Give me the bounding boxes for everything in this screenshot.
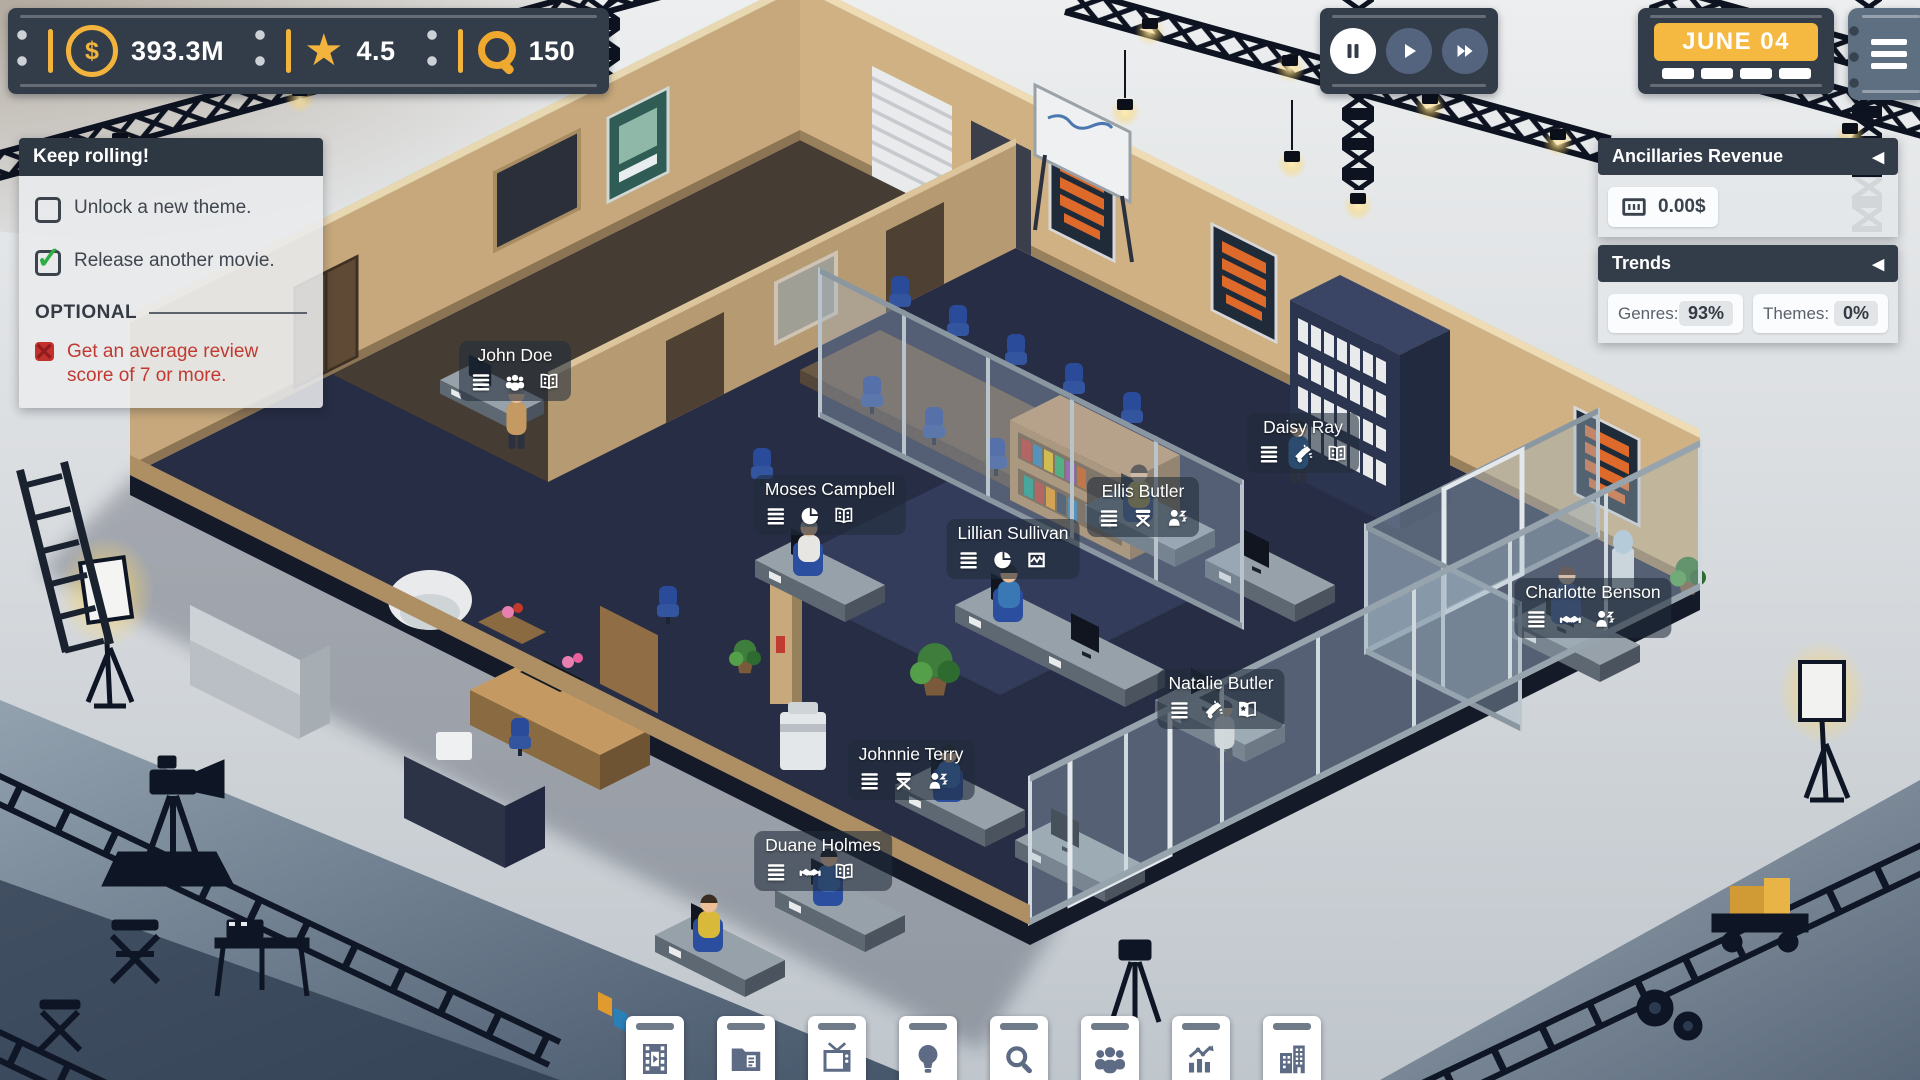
menu-button[interactable] (1848, 8, 1920, 100)
character-label-charlotte-benson[interactable]: Charlotte Benson (1514, 578, 1671, 638)
task-list: Unlock a new theme. Release another movi… (35, 196, 307, 276)
character-label-duane-holmes[interactable]: Duane Holmes (754, 831, 892, 891)
week-segment (1701, 68, 1733, 79)
objective-task-label: Unlock a new theme. (74, 196, 251, 220)
book-icon (833, 505, 855, 527)
fast-forward-icon (1453, 39, 1477, 63)
person-sleep-icon (927, 770, 949, 792)
chair-icon (893, 770, 915, 792)
magnifier-icon (476, 29, 516, 73)
optional-task-list: Get an average review score of 7 or more… (35, 340, 307, 388)
stat-cash-value: 393.3M (131, 36, 224, 67)
trend-genres: Genres: 93% (1608, 294, 1743, 333)
character-status-icons (859, 770, 964, 792)
toolbar-button-notch (1000, 1023, 1038, 1030)
tv-icon (819, 1041, 855, 1077)
pause-button[interactable] (1330, 28, 1376, 74)
ancillaries-value: 0.00$ (1658, 196, 1706, 218)
objective-task-label: Release another movie. (74, 249, 275, 273)
book-icon (1326, 443, 1348, 465)
chair-icon (1132, 507, 1154, 529)
character-status-icons (958, 549, 1069, 571)
character-status-icons (1168, 699, 1273, 721)
toolbar-button-notch (1182, 1023, 1220, 1030)
checked-checkbox-icon (35, 250, 61, 276)
stat-scouting-value: 150 (529, 36, 576, 67)
objective-task: Release another movie. (35, 249, 307, 276)
trends-panel-title: Trends (1612, 253, 1671, 274)
character-name: Duane Holmes (765, 835, 881, 856)
character-label-lillian-sullivan[interactable]: Lillian Sullivan (947, 519, 1080, 579)
game-viewport: $ 393.3M ★ 4.5 150 JUNE 04 Keep rolling!… (0, 0, 1920, 1080)
ticket-perforation (252, 22, 268, 80)
trend-label: Themes: (1763, 304, 1829, 324)
character-name: Daisy Ray (1258, 417, 1348, 438)
list-icon (470, 371, 492, 393)
list-icon (765, 505, 787, 527)
character-label-natalie-butler[interactable]: Natalie Butler (1157, 669, 1284, 729)
trend-value: 0% (1834, 301, 1878, 326)
character-label-john-doe[interactable]: John Doe (459, 341, 571, 401)
ticket-perforation (424, 22, 440, 80)
book-star-icon (1236, 699, 1258, 721)
ancillaries-value-pill: 0.00$ (1608, 187, 1718, 227)
divider-line (149, 312, 307, 314)
character-name: John Doe (470, 345, 560, 366)
toolbar-button-stats[interactable] (1172, 1016, 1230, 1080)
trend-themes: Themes: 0% (1753, 294, 1888, 333)
character-label-moses-campbell[interactable]: Moses Campbell (754, 475, 906, 535)
trends-panel: Trends ◀ Genres: 93% Themes: 0% (1598, 245, 1898, 343)
people-icon (504, 371, 526, 393)
character-name: Johnnie Terry (859, 744, 964, 765)
fast-forward-button[interactable] (1442, 28, 1488, 74)
search-icon (1001, 1041, 1037, 1077)
dollar-coin-icon: $ (66, 25, 118, 77)
stat-cash[interactable]: $ 393.3M (30, 25, 252, 77)
objectives-panel-body: Unlock a new theme. Release another movi… (19, 176, 323, 408)
trend-value: 93% (1679, 301, 1733, 326)
toolbar-button-staff[interactable] (1081, 1016, 1139, 1080)
unchecked-checkbox-icon (35, 197, 61, 223)
character-status-icons (1525, 608, 1660, 630)
character-status-icons (1098, 507, 1188, 529)
date-ticket: JUNE 04 (1638, 8, 1834, 94)
character-label-johnnie-terry[interactable]: Johnnie Terry (848, 740, 975, 800)
list-icon (958, 549, 980, 571)
optional-objective-task: Get an average review score of 7 or more… (35, 340, 307, 388)
ancillaries-panel-body: 0.00$ (1598, 177, 1898, 237)
book-icon (538, 371, 560, 393)
star-icon: ★ (304, 29, 343, 73)
toolbar-button-archive[interactable] (717, 1016, 775, 1080)
stat-reputation[interactable]: ★ 4.5 (268, 29, 424, 73)
pie-icon (992, 549, 1014, 571)
trends-panel-body: Genres: 93% Themes: 0% (1598, 284, 1898, 343)
pause-icon (1341, 39, 1365, 63)
objective-task: Unlock a new theme. (35, 196, 307, 223)
book-icon (833, 861, 855, 883)
ancillaries-panel: Ancillaries Revenue ◀ 0.00$ (1598, 138, 1898, 237)
character-status-icons (1258, 443, 1348, 465)
week-segment (1779, 68, 1811, 79)
stat-reputation-value: 4.5 (357, 36, 396, 67)
objectives-panel: Keep rolling! Unlock a new theme. Releas… (19, 138, 323, 408)
optional-task-label: Get an average review score of 7 or more… (67, 340, 307, 388)
person-sleep-icon (1166, 507, 1188, 529)
person-sleep-icon (1593, 608, 1615, 630)
staff-icon (1092, 1041, 1128, 1077)
toolbar-button-tv[interactable] (808, 1016, 866, 1080)
character-name: Lillian Sullivan (958, 523, 1069, 544)
week-segment (1740, 68, 1772, 79)
filmstrip-icon (637, 1041, 673, 1077)
activity-icon (1026, 549, 1048, 571)
handshake-icon (799, 861, 821, 883)
failed-x-icon (35, 342, 54, 361)
cash-ticket-icon (1620, 193, 1648, 221)
character-label-ellis-butler[interactable]: Ellis Butler (1087, 477, 1199, 537)
list-icon (859, 770, 881, 792)
current-date: JUNE 04 (1654, 23, 1818, 61)
list-icon (1168, 699, 1190, 721)
toolbar-button-notch (818, 1023, 856, 1030)
objectives-panel-title: Keep rolling! (19, 138, 323, 176)
optional-divider: OPTIONAL (35, 302, 307, 324)
toolbar-button-notch (1273, 1023, 1311, 1030)
character-name: Moses Campbell (765, 479, 895, 500)
ticket-perforation (14, 22, 30, 80)
toolbar-button-notch (636, 1023, 674, 1030)
toolbar-button-ideas[interactable] (899, 1016, 957, 1080)
toolbar-button-search[interactable] (990, 1016, 1048, 1080)
toolbar-button-notch (909, 1023, 947, 1030)
trends-panel-header[interactable]: Trends ◀ (1598, 245, 1898, 282)
bulb-icon (910, 1041, 946, 1077)
stat-scouting[interactable]: 150 (440, 29, 604, 73)
week-progress (1662, 68, 1811, 79)
character-status-icons (765, 505, 895, 527)
list-icon (1258, 443, 1280, 465)
play-icon (1397, 39, 1421, 63)
stat-accent-bar (286, 29, 291, 73)
list-icon (1525, 608, 1547, 630)
time-controls (1320, 8, 1498, 94)
character-name: Natalie Butler (1168, 673, 1273, 694)
ancillaries-panel-header[interactable]: Ancillaries Revenue ◀ (1598, 138, 1898, 175)
toolbar-button-movies[interactable] (626, 1016, 684, 1080)
collapse-arrow-icon: ◀ (1872, 148, 1884, 166)
character-name: Ellis Butler (1098, 481, 1188, 502)
stats-ticket-bar: $ 393.3M ★ 4.5 150 (8, 8, 609, 94)
handshake-icon (1559, 608, 1581, 630)
megaphone-icon (1202, 699, 1224, 721)
character-status-icons (765, 861, 881, 883)
character-status-icons (470, 371, 560, 393)
week-segment (1662, 68, 1694, 79)
list-icon (1098, 507, 1120, 529)
toolbar-button-notch (727, 1023, 765, 1030)
stat-accent-bar (48, 29, 53, 73)
megaphone-icon (1292, 443, 1314, 465)
character-label-daisy-ray[interactable]: Daisy Ray (1247, 413, 1359, 473)
building-icon (1274, 1041, 1310, 1077)
hamburger-icon (1871, 39, 1907, 69)
bottom-toolbar (626, 1016, 1321, 1080)
ancillaries-panel-title: Ancillaries Revenue (1612, 146, 1783, 167)
toolbar-button-notch (1091, 1023, 1129, 1030)
play-button[interactable] (1386, 28, 1432, 74)
stats-icon (1183, 1041, 1219, 1077)
folder-icon (728, 1041, 764, 1077)
stat-accent-bar (458, 29, 463, 73)
ticket-perforation (1846, 18, 1862, 90)
toolbar-button-studio[interactable] (1263, 1016, 1321, 1080)
list-icon (765, 861, 787, 883)
trend-label: Genres: (1618, 304, 1678, 324)
collapse-arrow-icon: ◀ (1872, 255, 1884, 273)
optional-label: OPTIONAL (35, 302, 137, 324)
character-name: Charlotte Benson (1525, 582, 1660, 603)
pie-icon (799, 505, 821, 527)
